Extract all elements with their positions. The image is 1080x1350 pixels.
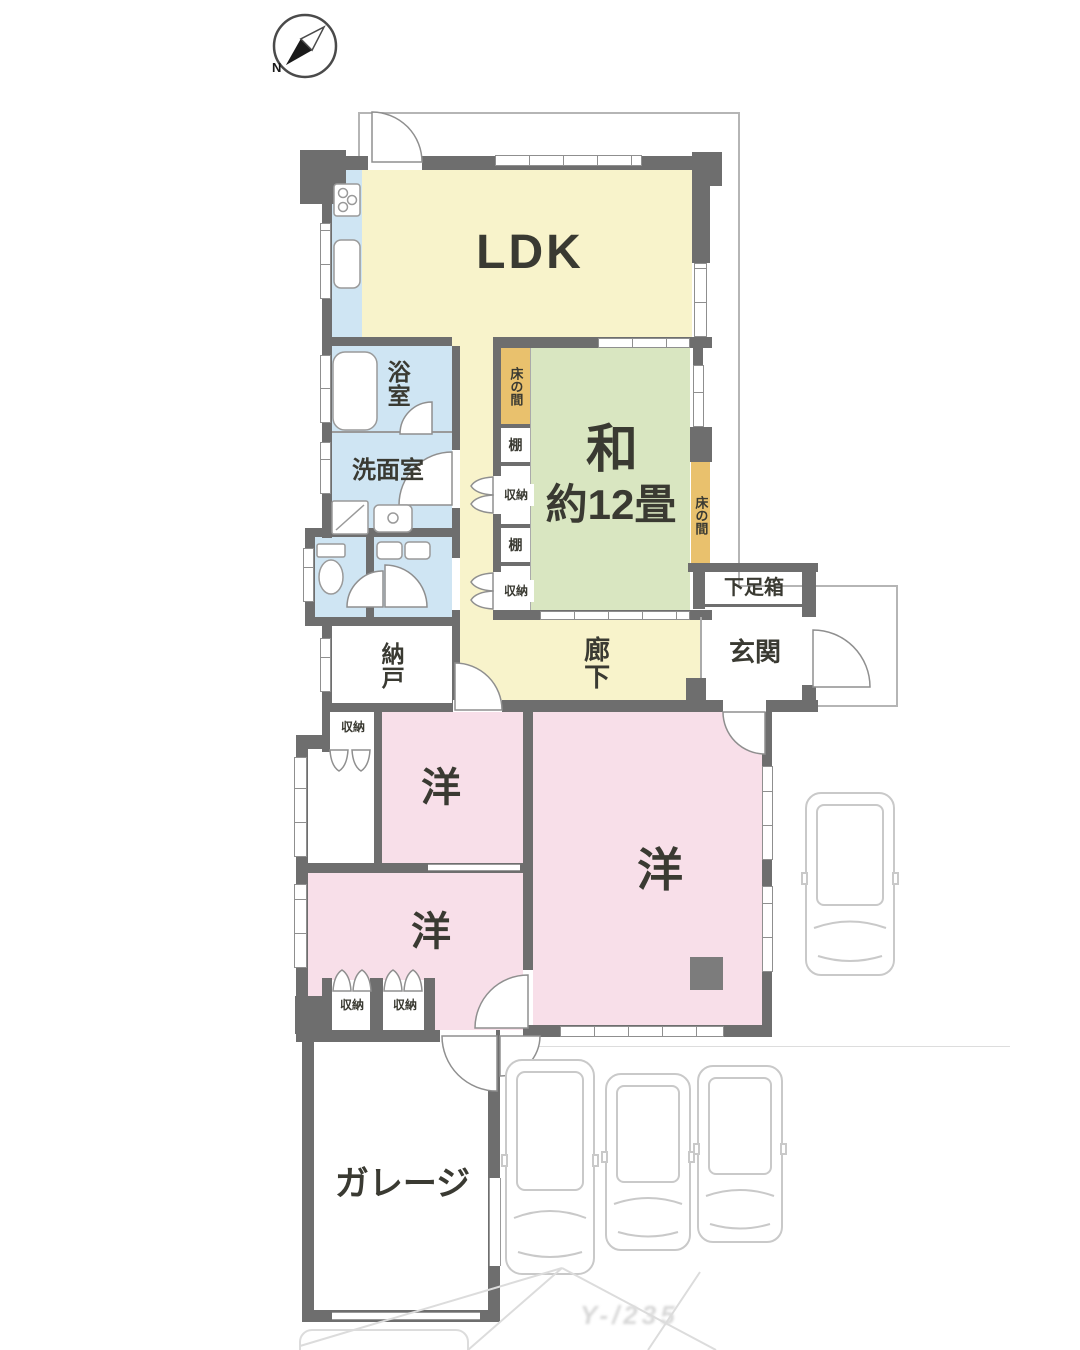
wall-thin	[332, 431, 452, 433]
tokonoma-right-label: 床の間	[691, 466, 710, 564]
wall-segment	[305, 528, 452, 537]
window	[598, 338, 690, 348]
window	[762, 886, 773, 972]
car-icon	[602, 1074, 694, 1250]
door-opening	[723, 700, 766, 712]
door-opening	[368, 156, 422, 170]
garage-door	[332, 1312, 480, 1320]
floor-plan: N	[0, 0, 1080, 1350]
japanese-room-name: 和	[580, 420, 644, 480]
window	[303, 548, 314, 602]
wall-thin	[501, 462, 530, 466]
window	[320, 442, 331, 494]
window	[560, 1026, 724, 1037]
threshold-line	[700, 617, 702, 683]
storage-label: 収納	[332, 716, 374, 738]
terrace-outline	[358, 112, 360, 158]
corridor-label: 廊下	[578, 628, 612, 698]
window	[320, 638, 331, 692]
washroom-label: 洗面室	[336, 457, 440, 485]
entrance-label: 玄関	[712, 638, 798, 668]
wall-corner	[693, 563, 705, 609]
door-opening	[523, 970, 533, 1025]
wall-segment	[692, 170, 710, 263]
window	[762, 766, 773, 860]
storeroom-label: 納戸	[376, 634, 406, 698]
wall-segment	[762, 712, 772, 1025]
door-opening	[452, 450, 460, 508]
porch-outline	[816, 705, 898, 707]
storage-label: 収納	[498, 484, 534, 506]
door-arc	[500, 1036, 540, 1076]
japanese-room-size: 約12畳	[528, 480, 694, 530]
car-icon	[694, 1066, 786, 1242]
wall-segment	[366, 537, 374, 617]
door-opening	[453, 700, 502, 712]
door-opening	[802, 617, 816, 685]
car-icon	[502, 1060, 598, 1274]
terrace-outline	[358, 112, 740, 114]
garage-label: ガレージ	[330, 1164, 475, 1206]
window	[540, 611, 690, 620]
wall-segment	[688, 563, 818, 572]
storage-label: 収納	[384, 994, 426, 1016]
shelf-label: 棚	[502, 532, 529, 558]
wall-segment	[693, 348, 703, 365]
door-arc	[372, 112, 422, 162]
window	[694, 263, 707, 337]
wall-segment	[322, 712, 330, 752]
wall-segment	[452, 346, 460, 702]
watermark-text: Y-/235	[580, 1300, 679, 1331]
western-room-2-label: 洋	[408, 908, 454, 956]
storage-label: 収納	[498, 580, 534, 602]
window	[294, 757, 307, 857]
wall-thin	[705, 604, 802, 607]
compass-icon: N	[272, 15, 336, 77]
wall-segment	[305, 617, 452, 626]
ldk-label: LDK	[430, 222, 630, 284]
western-room-1-label: 洋	[418, 764, 464, 812]
wall-thin	[501, 562, 530, 566]
bathroom-label: 浴室	[382, 352, 412, 416]
corridor-area	[452, 620, 700, 702]
western-room-3-label: 洋	[634, 844, 686, 896]
porch-outline	[896, 585, 898, 707]
bifold-door	[330, 750, 348, 771]
window	[320, 223, 331, 299]
door-opening	[440, 1030, 496, 1042]
wall-segment	[322, 703, 455, 712]
sliding-door	[428, 864, 520, 871]
window	[693, 365, 704, 427]
parking-line	[502, 1046, 1010, 1047]
faint-car-icon	[300, 1330, 468, 1350]
window	[320, 355, 331, 423]
door-opening	[489, 1178, 501, 1266]
wall-corner	[690, 427, 712, 462]
storage-label: 収納	[332, 994, 372, 1016]
tokonoma-left-label: 床の間	[502, 350, 529, 422]
wall-segment	[302, 1035, 314, 1322]
window	[294, 884, 307, 968]
wall-segment	[322, 337, 452, 346]
toilet-room	[315, 537, 366, 617]
compass-n-label: N	[272, 60, 281, 75]
bifold-door	[352, 750, 370, 771]
wall-segment	[374, 712, 382, 863]
powder-room	[374, 537, 452, 617]
wall-thin	[501, 424, 530, 428]
window	[495, 155, 642, 166]
shelf-label: 棚	[502, 432, 529, 458]
wall-thin	[501, 524, 530, 528]
shoe-box-label: 下足箱	[706, 575, 802, 601]
car-icon	[802, 793, 898, 975]
wall-corner	[295, 996, 322, 1034]
wall-segment	[322, 978, 332, 1032]
door-arc	[813, 630, 870, 687]
terrace-outline	[738, 112, 740, 587]
door-opening	[452, 558, 460, 610]
